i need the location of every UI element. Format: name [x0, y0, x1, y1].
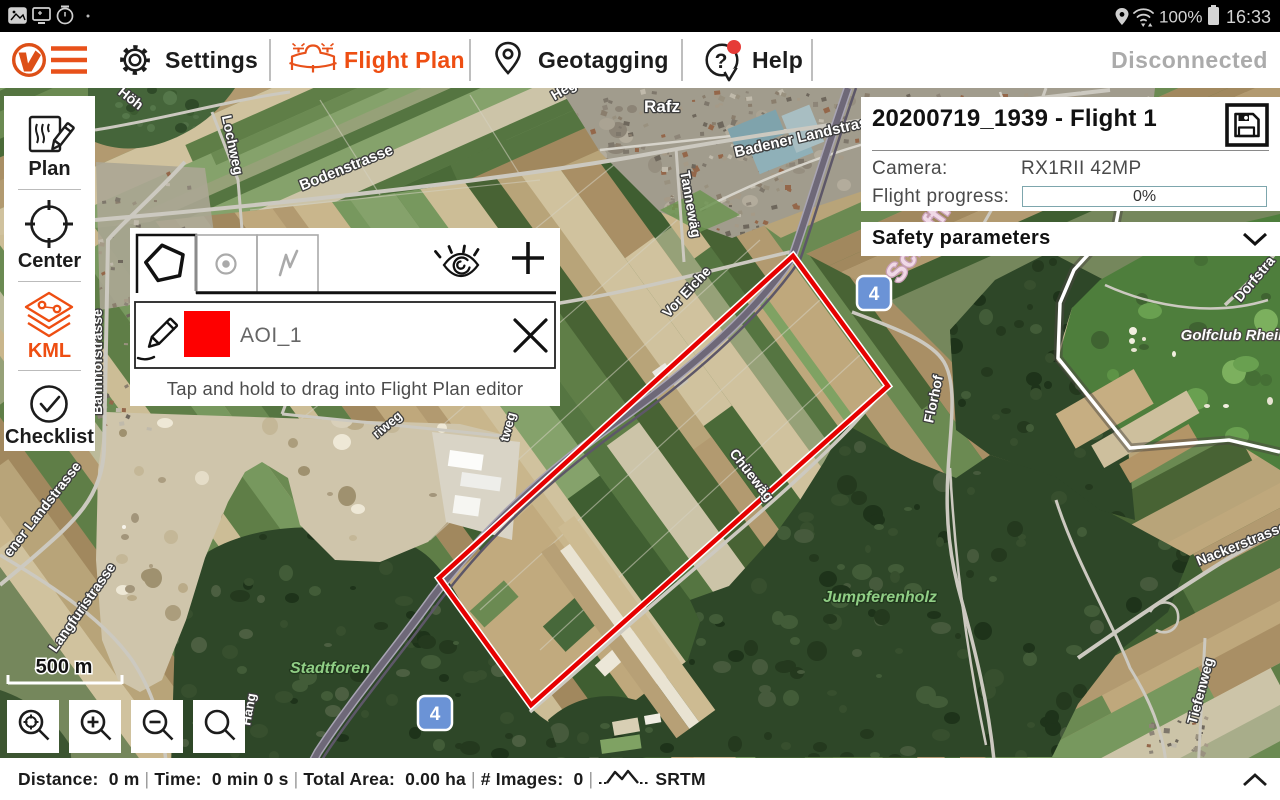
- svg-text:4: 4: [869, 284, 880, 305]
- svg-text:Jumpferenholz: Jumpferenholz: [823, 589, 937, 606]
- svg-text:?: ?: [715, 50, 728, 73]
- svg-text:Rafz: Rafz: [644, 97, 680, 116]
- svg-text:100%: 100%: [1159, 8, 1202, 27]
- svg-text:16:33: 16:33: [1226, 7, 1271, 27]
- svg-text:Golfclub Rhein: Golfclub Rhein: [1181, 327, 1280, 344]
- svg-text:Stadtforen: Stadtforen: [290, 660, 370, 677]
- svg-text:500 m: 500 m: [36, 656, 93, 678]
- svg-text:4: 4: [430, 704, 441, 725]
